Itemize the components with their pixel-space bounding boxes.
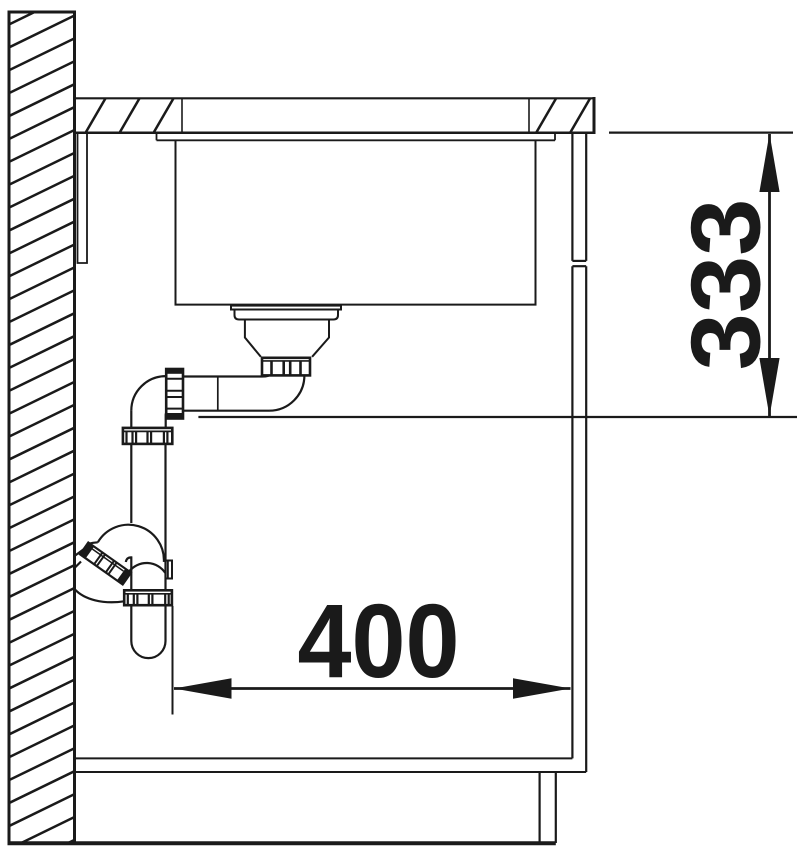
svg-text:333: 333 bbox=[671, 199, 781, 371]
svg-text:400: 400 bbox=[298, 583, 460, 700]
